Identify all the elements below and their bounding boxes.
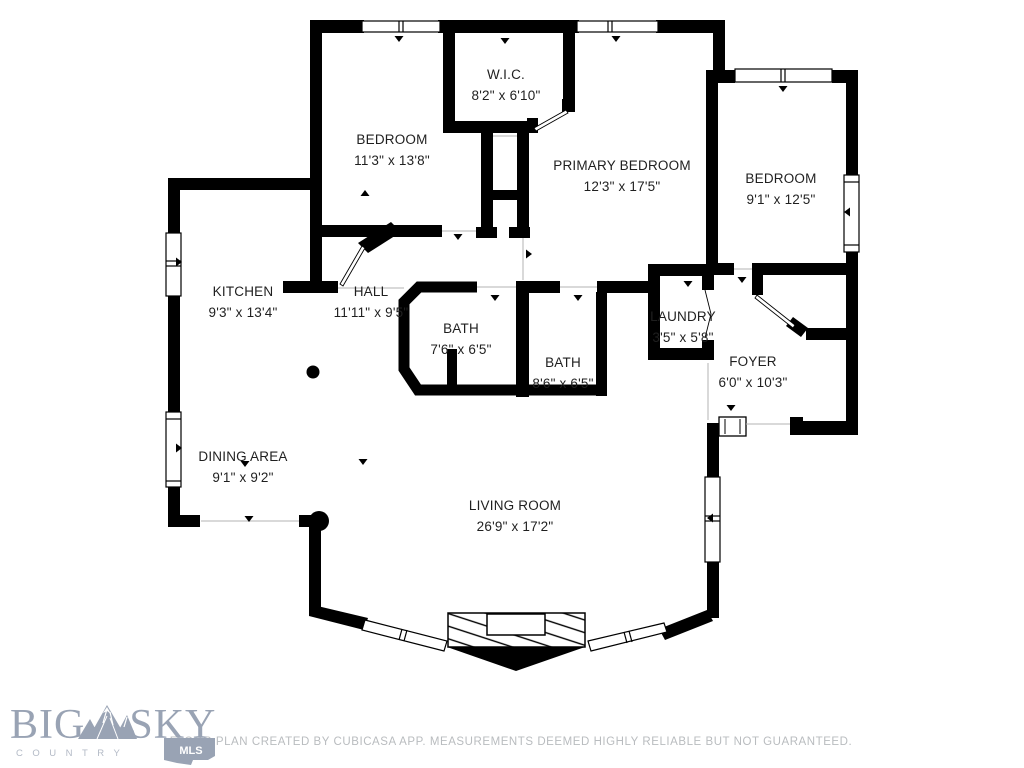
room-name: BATH [532, 352, 593, 373]
room-dims: 9'3" x 13'4" [209, 302, 278, 323]
room-name: PRIMARY BEDROOM [553, 155, 691, 176]
room-name: FOYER [719, 351, 788, 372]
room-dims: 9'1" x 9'2" [198, 467, 287, 488]
logo-tagline: COUNTRY [16, 748, 129, 759]
room-name: W.I.C. [472, 64, 541, 85]
room-name: LIVING ROOM [469, 495, 561, 516]
room-dims: 9'1" x 12'5" [745, 189, 816, 210]
room-name: BATH [430, 318, 491, 339]
room-dims: 3'5" x 5'8" [650, 327, 716, 348]
mls-badge: MLS [162, 734, 218, 766]
floor-plan-drawing [0, 0, 1024, 768]
room-name: BEDROOM [354, 129, 430, 150]
room-label-kitchen: KITCHEN 9'3" x 13'4" [209, 281, 278, 323]
front-door [719, 417, 746, 436]
floor-plan-page: W.I.C. 8'2" x 6'10" BEDROOM 11'3" x 13'8… [0, 0, 1024, 768]
walls [168, 20, 858, 640]
room-label-wic: W.I.C. 8'2" x 6'10" [472, 64, 541, 106]
room-label-laundry: LAUNDRY 3'5" x 5'8" [650, 306, 716, 348]
room-name: BEDROOM [745, 168, 816, 189]
room-name: DINING AREA [198, 446, 287, 467]
room-label-bedroom-2: BEDROOM 9'1" x 12'5" [745, 168, 816, 210]
room-dims: 26'9" x 17'2" [469, 516, 561, 537]
mls-badge-text: MLS [179, 745, 202, 757]
fireplace [447, 613, 585, 671]
room-dims: 8'2" x 6'10" [472, 85, 541, 106]
room-label-primary-bedroom: PRIMARY BEDROOM 12'3" x 17'5" [553, 155, 691, 197]
room-dims: 8'6" x 6'5" [532, 373, 593, 394]
room-label-bath-1: BATH 7'6" x 6'5" [430, 318, 491, 360]
room-name: KITCHEN [209, 281, 278, 302]
logo-word-big: BIG [10, 704, 85, 746]
room-dims: 7'6" x 6'5" [430, 339, 491, 360]
room-label-hall: HALL 11'11" x 9'5" [334, 281, 409, 323]
room-dims: 11'11" x 9'5" [334, 302, 409, 323]
room-name: LAUNDRY [650, 306, 716, 327]
column-icons [307, 366, 330, 532]
room-label-living-room: LIVING ROOM 26'9" x 17'2" [469, 495, 561, 537]
room-name: HALL [334, 281, 409, 302]
disclaimer-text: FLOOR PLAN CREATED BY CUBICASA APP. MEAS… [170, 736, 853, 748]
room-label-bedroom-1: BEDROOM 11'3" x 13'8" [354, 129, 430, 171]
windows [166, 21, 859, 651]
room-label-bath-2: BATH 8'6" x 6'5" [532, 352, 593, 394]
room-label-foyer: FOYER 6'0" x 10'3" [719, 351, 788, 393]
big-sky-country-mls-logo: BIG SKY COUNTRY MLS [10, 694, 225, 766]
room-label-dining-area: DINING AREA 9'1" x 9'2" [198, 446, 287, 488]
room-dims: 11'3" x 13'8" [354, 150, 430, 171]
room-dims: 12'3" x 17'5" [553, 176, 691, 197]
room-dims: 6'0" x 10'3" [719, 372, 788, 393]
